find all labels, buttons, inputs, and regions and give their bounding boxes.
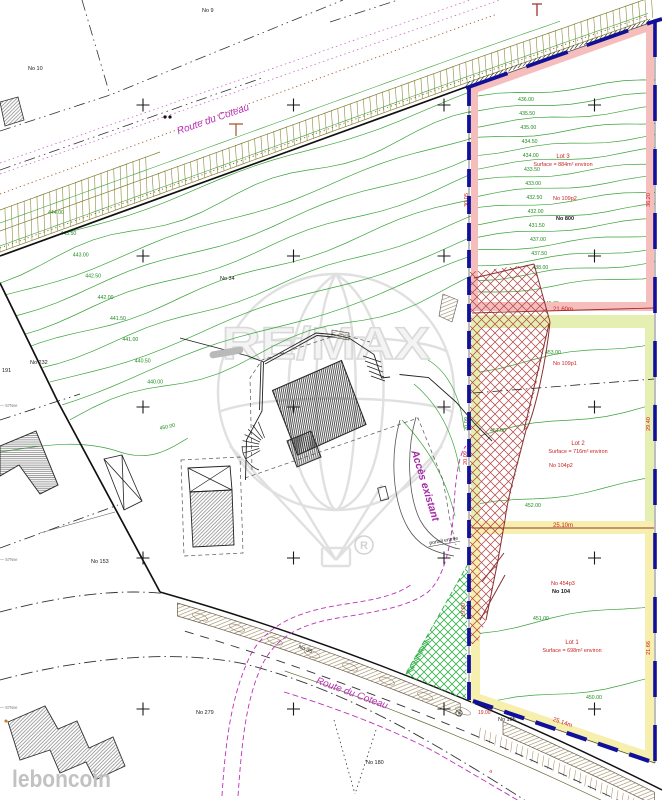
svg-text:No 454p3: No 454p3 — [551, 581, 575, 587]
svg-text:No 105: No 105 — [498, 717, 516, 723]
svg-text:440.50: 440.50 — [135, 358, 151, 364]
svg-text:Lot 2: Lot 2 — [571, 441, 585, 447]
svg-text:No 180: No 180 — [366, 760, 384, 766]
svg-text:— 57Nve: — 57Nve — [0, 557, 18, 562]
svg-text:436.00: 436.00 — [518, 97, 534, 103]
svg-text:R: R — [360, 540, 368, 552]
svg-text:No 9: No 9 — [202, 8, 214, 14]
svg-text:452.00: 452.00 — [525, 503, 541, 509]
svg-text:No 104: No 104 — [552, 589, 571, 595]
svg-text:25.10m: 25.10m — [553, 523, 573, 529]
svg-text:440.00: 440.00 — [147, 380, 163, 386]
svg-text:191: 191 — [2, 368, 11, 374]
svg-text:Lot 3: Lot 3 — [556, 154, 570, 160]
svg-text:19.00: 19.00 — [461, 603, 467, 617]
svg-text:Surface = 884m² environ: Surface = 884m² environ — [533, 162, 592, 168]
svg-text:No 109p1: No 109p1 — [553, 361, 577, 367]
svg-text:leboncoin: leboncoin — [12, 766, 111, 793]
svg-text:432.00: 432.00 — [528, 209, 544, 215]
svg-text:No 800: No 800 — [556, 216, 574, 222]
svg-text:443.00: 443.00 — [73, 252, 89, 258]
svg-text:No 279: No 279 — [196, 710, 214, 716]
svg-text:434.00: 434.00 — [523, 153, 539, 159]
svg-text:36.20: 36.20 — [646, 193, 652, 207]
svg-text:— 57Nve: — 57Nve — [0, 403, 18, 408]
svg-text:29.40: 29.40 — [646, 417, 652, 431]
svg-text:450.00: 450.00 — [586, 695, 602, 701]
svg-text:434.50: 434.50 — [522, 139, 538, 145]
svg-text:435.00: 435.00 — [520, 125, 536, 131]
svg-text:21.60m: 21.60m — [553, 307, 573, 313]
svg-text:No 109p2: No 109p2 — [553, 196, 577, 202]
svg-text:441.00: 441.00 — [122, 337, 138, 343]
svg-text:— 57Nve: — 57Nve — [0, 705, 18, 710]
svg-text:21.66: 21.66 — [646, 641, 652, 655]
svg-text:No 34: No 34 — [220, 276, 235, 282]
svg-text:442.00: 442.00 — [98, 295, 114, 301]
svg-text:No 104p2: No 104p2 — [549, 463, 573, 469]
svg-text:No 232: No 232 — [30, 360, 48, 366]
svg-text:Surface = 716m² environ: Surface = 716m² environ — [548, 449, 607, 455]
svg-text:432.50: 432.50 — [526, 195, 542, 201]
svg-text:453.00: 453.00 — [545, 350, 561, 356]
svg-text:19.00: 19.00 — [478, 710, 491, 716]
svg-text:451.00: 451.00 — [533, 616, 549, 622]
svg-text:437.50: 437.50 — [531, 251, 547, 257]
svg-text:437.00: 437.00 — [530, 237, 546, 243]
svg-text:442.50: 442.50 — [85, 274, 101, 280]
svg-text:431.50: 431.50 — [529, 223, 545, 229]
svg-text:RE/MAX: RE/MAX — [222, 318, 430, 369]
svg-text:435.50: 435.50 — [519, 111, 535, 117]
svg-text:Lot 1: Lot 1 — [565, 640, 579, 646]
svg-text:No 153: No 153 — [91, 559, 109, 565]
svg-text:Surface = 698m² environ: Surface = 698m² environ — [542, 648, 601, 654]
svg-text:441.50: 441.50 — [110, 316, 126, 322]
svg-text:No 10: No 10 — [28, 66, 43, 72]
svg-text:433.00: 433.00 — [525, 181, 541, 187]
